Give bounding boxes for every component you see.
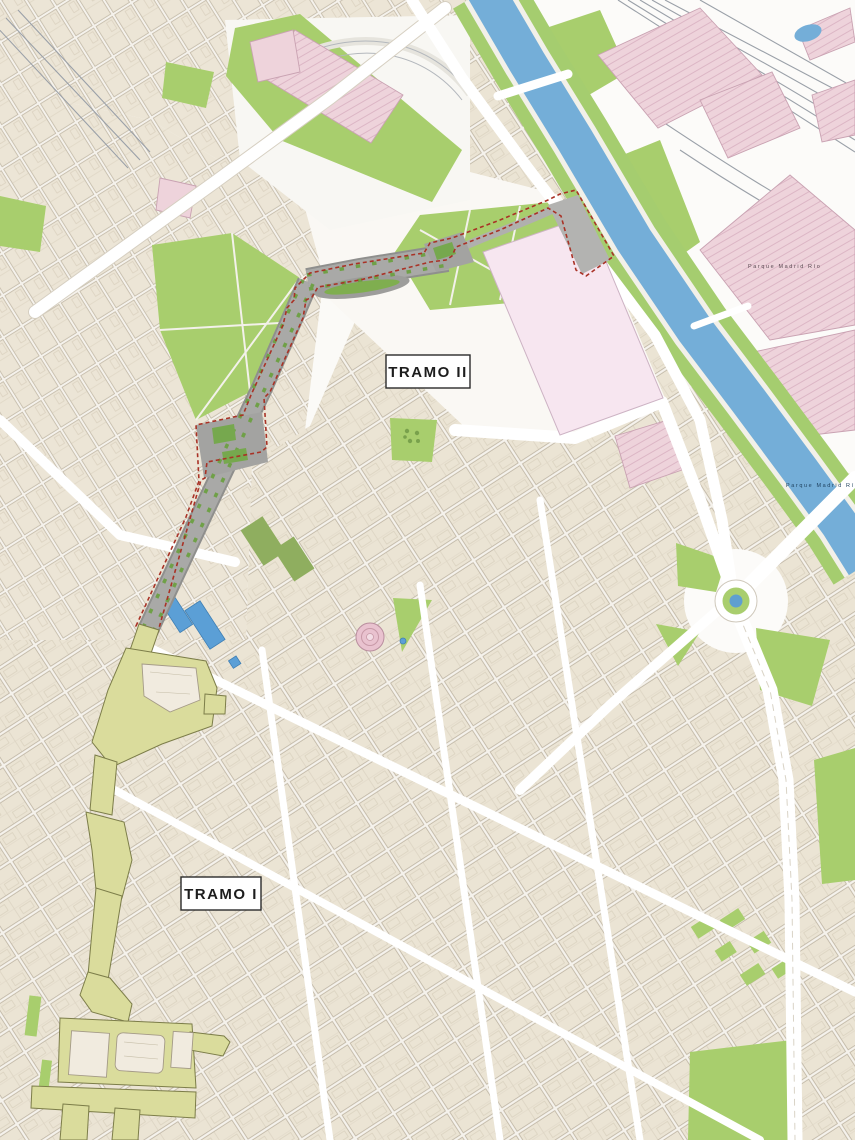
tramo-i-label-text: TRAMO I: [184, 886, 258, 903]
tramo-ii-label-text: TRAMO II: [388, 364, 468, 381]
urban-plan-map: TRAMO II TRAMO I Parque Madrid Río Parqu…: [0, 0, 855, 1140]
map-canvas: TRAMO II TRAMO I Parque Madrid Río Parqu…: [0, 0, 855, 1140]
tramo-ii-label: TRAMO II: [386, 355, 470, 388]
parque-madrid-rio-label-river: Parque Madrid Río: [786, 483, 855, 489]
tramo-i-label: TRAMO I: [181, 877, 261, 910]
parque-madrid-rio-label-north: Parque Madrid Río: [748, 264, 821, 270]
round-building: [356, 623, 384, 651]
roundabout: [715, 580, 757, 622]
